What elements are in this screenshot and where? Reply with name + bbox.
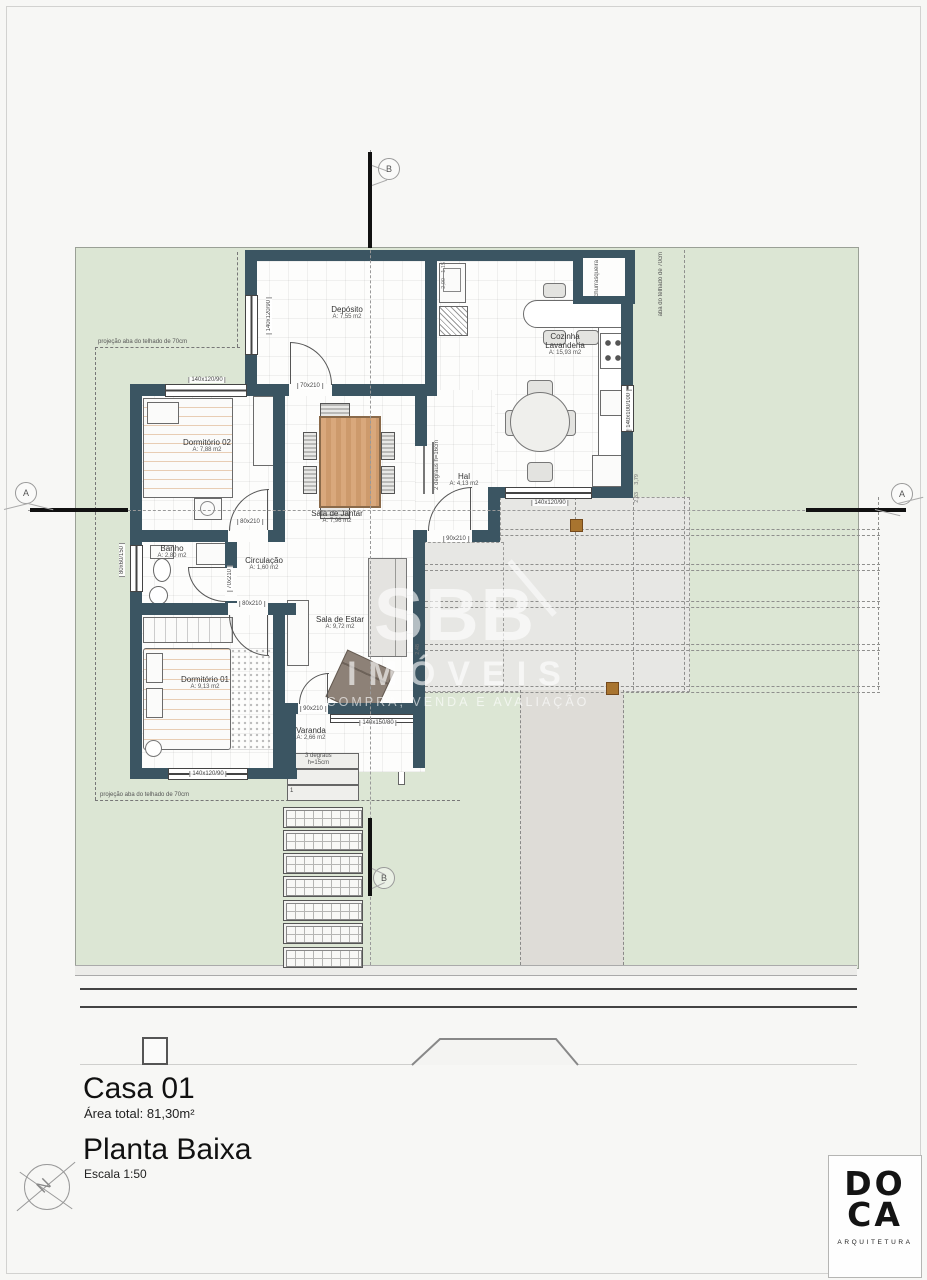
room-label-dorm2: Dormitório 02 A: 7,88 m2 [183, 438, 231, 454]
roof-overhang-label-bottom: projeção aba do telhado de 70cm [100, 792, 189, 798]
drawing-title: Planta Baixa [83, 1133, 251, 1167]
pergola-beam [425, 601, 880, 608]
site-boundary-line [80, 1006, 857, 1008]
sofa [368, 558, 407, 657]
room-label-banho: Banho A: 2,80 m2 [157, 544, 186, 560]
garden-paver [283, 923, 363, 944]
roof-overhang-line [95, 347, 240, 348]
room-label-dorm1: Dormitório 01 A: 9,13 m2 [181, 675, 229, 691]
wall-segment [130, 603, 296, 615]
varanda-step [287, 769, 359, 785]
wall-segment [413, 714, 425, 768]
opening-label: 70x210 [297, 383, 323, 389]
opening-label: 140x120/90 [189, 771, 226, 777]
pillow-dorm1 [146, 653, 163, 683]
pergola-post [570, 519, 583, 532]
site-sidewalk-strip [75, 965, 857, 976]
roof-overhang-label-top: projeção aba do telhado de 70cm [98, 339, 187, 345]
garden-paver [283, 876, 363, 897]
round-table [510, 392, 570, 452]
dim-text: 2,00 [441, 278, 447, 289]
wall-segment [415, 396, 427, 446]
dining-chair [303, 466, 317, 494]
step-number: 1 [290, 788, 293, 794]
driveway-ramp [410, 1036, 580, 1066]
floor-plan-sheet: projeção aba do telhado de 70cm projeção… [0, 0, 927, 1280]
garden-paver [283, 853, 363, 874]
dining-chair [320, 403, 350, 417]
opening-label: 140x100/100 [626, 390, 632, 431]
door-leaf [290, 342, 291, 384]
hal-step-line [423, 442, 425, 494]
dining-chair [381, 466, 395, 494]
opening-label: 140x150/80 [359, 720, 396, 726]
house-area-total: Área total: 81,30m² [84, 1106, 195, 1121]
kitchen-sink [600, 390, 622, 416]
stool-dorm1 [145, 740, 162, 757]
dim-text: 2,83 [634, 492, 640, 503]
room-label-circulacao: Circulação A: 1,60 m2 [245, 556, 283, 572]
doca-logo-letters: DO CA [829, 1168, 921, 1231]
compass-n-label: N [33, 1175, 56, 1198]
room-label-estar: Sala de Estar A: 9,72 m2 [316, 615, 364, 631]
pergola-line [633, 497, 634, 690]
opening-label: 90x210 [443, 536, 469, 542]
site-boundary-line [80, 988, 857, 990]
roof-overhang-right-line [684, 250, 685, 690]
roof-overhang-line [95, 800, 460, 801]
kitchen-chair [527, 462, 553, 482]
window-dorm2-north [165, 384, 247, 397]
garden-paver [283, 807, 363, 828]
pergola-beam [425, 686, 880, 693]
room-label-deposito: Depósito A: 7,55 m2 [331, 305, 363, 321]
house-title: Casa 01 [83, 1072, 195, 1106]
opening-label: 80x210 [237, 519, 263, 525]
pergola-line [878, 497, 879, 690]
dim-text: 2,48 [415, 644, 421, 655]
section-bar-a-left [30, 508, 128, 512]
window-deposito-west [245, 295, 258, 355]
garden-paver [283, 947, 363, 968]
wall-segment [425, 261, 437, 384]
churrasqueira-label: churrasqueira [594, 260, 600, 297]
window-banho-west [130, 545, 143, 592]
roof-overhang-label-right: aba do telhado de 70cm [658, 252, 664, 316]
pergola-beam [425, 644, 880, 651]
toilet-icon [153, 558, 171, 582]
doca-logo-subtitle: ARQUITETURA [829, 1239, 921, 1246]
wardrobe-dorm1 [143, 617, 233, 643]
varanda-step [287, 785, 359, 801]
washing-machine [439, 306, 468, 336]
churrasqueira-inner [583, 258, 625, 296]
patio-area [500, 497, 690, 692]
section-bar-a-right [806, 508, 906, 512]
section-bar-b-bottom [368, 818, 372, 896]
bath-counter [196, 543, 228, 565]
bar-counter [523, 300, 631, 328]
room-label-jantar: Sala de Jantar A: 7,96 m2 [311, 509, 363, 525]
opening-label: 140x120/90 [188, 377, 225, 383]
north-compass-icon: N [24, 1164, 70, 1210]
door-leaf [327, 673, 328, 703]
garden-paver [283, 830, 363, 851]
wall-segment [273, 615, 285, 768]
room-label-cozinha: Cozinha Lavanderia A: 15,93 m2 [545, 332, 585, 357]
pergola-beam [425, 564, 880, 571]
dim-text: 1,15 [441, 262, 447, 273]
roof-overhang-line [95, 347, 96, 800]
room-label-hal: Hal A: 4,13 m2 [449, 472, 478, 488]
opening-label: 90x210 [300, 706, 326, 712]
opening-label: 80x210 [239, 601, 265, 607]
pergola-post [606, 682, 619, 695]
doca-logo: DO CA ARQUITETURA [828, 1155, 922, 1278]
door-gap [228, 530, 268, 542]
section-bar-b-top [368, 152, 372, 248]
steps-varanda-label: 3 degraus h=15cm [305, 753, 332, 767]
door-leaf [470, 487, 471, 530]
wall-segment [273, 396, 285, 542]
rug-dorm1 [230, 648, 276, 750]
door-leaf [188, 567, 225, 568]
wall-segment [413, 542, 425, 703]
wall-segment [285, 714, 296, 768]
dining-chair [303, 432, 317, 460]
roof-overhang-line [237, 252, 238, 347]
opening-label: 140x120/90 [266, 297, 272, 334]
site-plan-post [142, 1037, 168, 1065]
window-kitchen-south [505, 487, 592, 499]
pillow-dorm2 [147, 402, 179, 424]
garden-paver [283, 900, 363, 921]
walkway [520, 690, 624, 965]
opening-label: 80x60/150 [119, 543, 125, 577]
opening-label: 70x210 [227, 566, 233, 592]
dim-text: 3,79 [634, 474, 640, 485]
section-marker-a-left: A [15, 482, 37, 504]
section-line-a [28, 510, 900, 511]
opening-label: 140x120/90 [531, 500, 568, 506]
drawing-scale: Escala 1:50 [84, 1167, 147, 1181]
pillow-dorm1 [146, 688, 163, 718]
door-leaf [267, 615, 268, 655]
dining-chair [381, 432, 395, 460]
steps-hal-label: 2 degraus h=16cm [434, 440, 440, 490]
dining-table [319, 416, 381, 508]
room-label-varanda: Varanda A: 2,66 m2 [296, 726, 326, 742]
bar-chair [543, 283, 566, 298]
fridge [592, 455, 624, 487]
lamp-dorm2 [200, 501, 215, 516]
